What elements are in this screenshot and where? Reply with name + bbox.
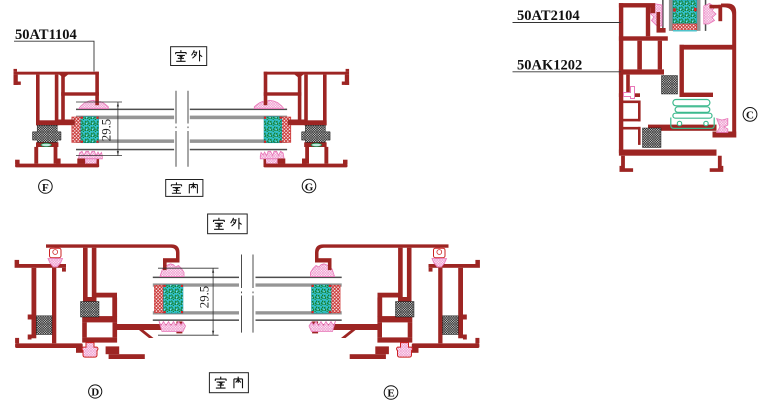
svg-text:29.5: 29.5: [197, 286, 211, 308]
svg-text:D: D: [91, 387, 99, 399]
svg-text:G: G: [305, 181, 314, 193]
svg-text:50AK1202: 50AK1202: [517, 58, 582, 74]
svg-text:50AT1104: 50AT1104: [15, 27, 77, 43]
svg-text:50AT2104: 50AT2104: [517, 8, 580, 24]
svg-text:F: F: [42, 182, 49, 194]
svg-text:C: C: [746, 110, 754, 122]
svg-text:29.5: 29.5: [100, 119, 114, 141]
svg-text:E: E: [387, 388, 394, 400]
